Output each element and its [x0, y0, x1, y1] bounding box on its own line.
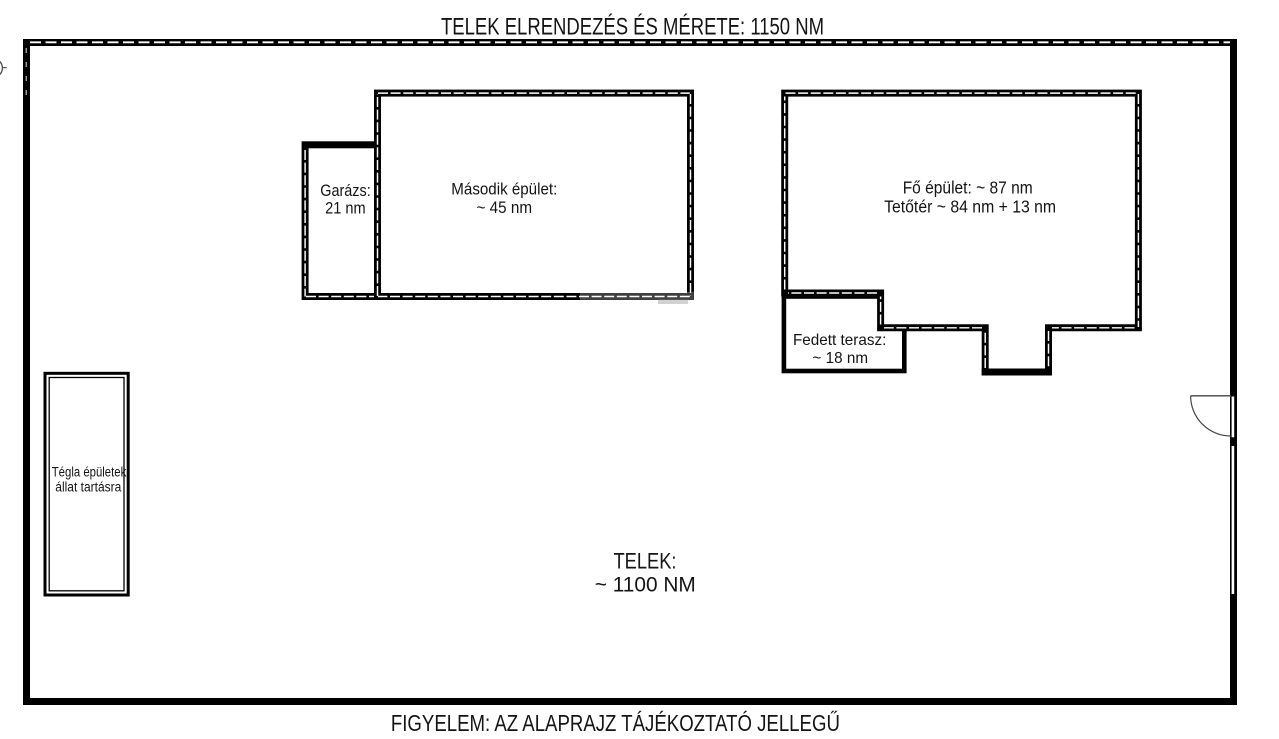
svg-text:FIGYELEM: AZ ALAPRAJZ TÁJÉKOZT: FIGYELEM: AZ ALAPRAJZ TÁJÉKOZTATÓ JELLEG…: [391, 710, 840, 736]
svg-text:TELEK ELRENDEZÉS ÉS MÉRETE: 11: TELEK ELRENDEZÉS ÉS MÉRETE: 1150 NM: [441, 13, 824, 40]
svg-text:21 nm: 21 nm: [325, 200, 366, 218]
svg-text:Tégla épületek: Tégla épületek: [52, 465, 127, 480]
svg-text:állat tartásra: állat tartásra: [55, 480, 121, 495]
svg-text:Második épület:: Második épület:: [451, 180, 557, 198]
svg-text:Fedett terasz:: Fedett terasz:: [793, 332, 887, 349]
svg-text:Tetőtér ~ 84 nm + 13 nm: Tetőtér ~ 84 nm + 13 nm: [884, 197, 1056, 217]
svg-text:TELEK:: TELEK:: [614, 548, 677, 573]
svg-text:Fő épület: ~ 87 nm: Fő épület: ~ 87 nm: [903, 177, 1033, 197]
svg-text:~ 45 nm: ~ 45 nm: [477, 199, 533, 217]
svg-text:~ 18 nm: ~ 18 nm: [813, 350, 869, 367]
svg-text:~ 1100 NM: ~ 1100 NM: [595, 573, 696, 597]
svg-text:Garázs:: Garázs:: [320, 182, 371, 200]
